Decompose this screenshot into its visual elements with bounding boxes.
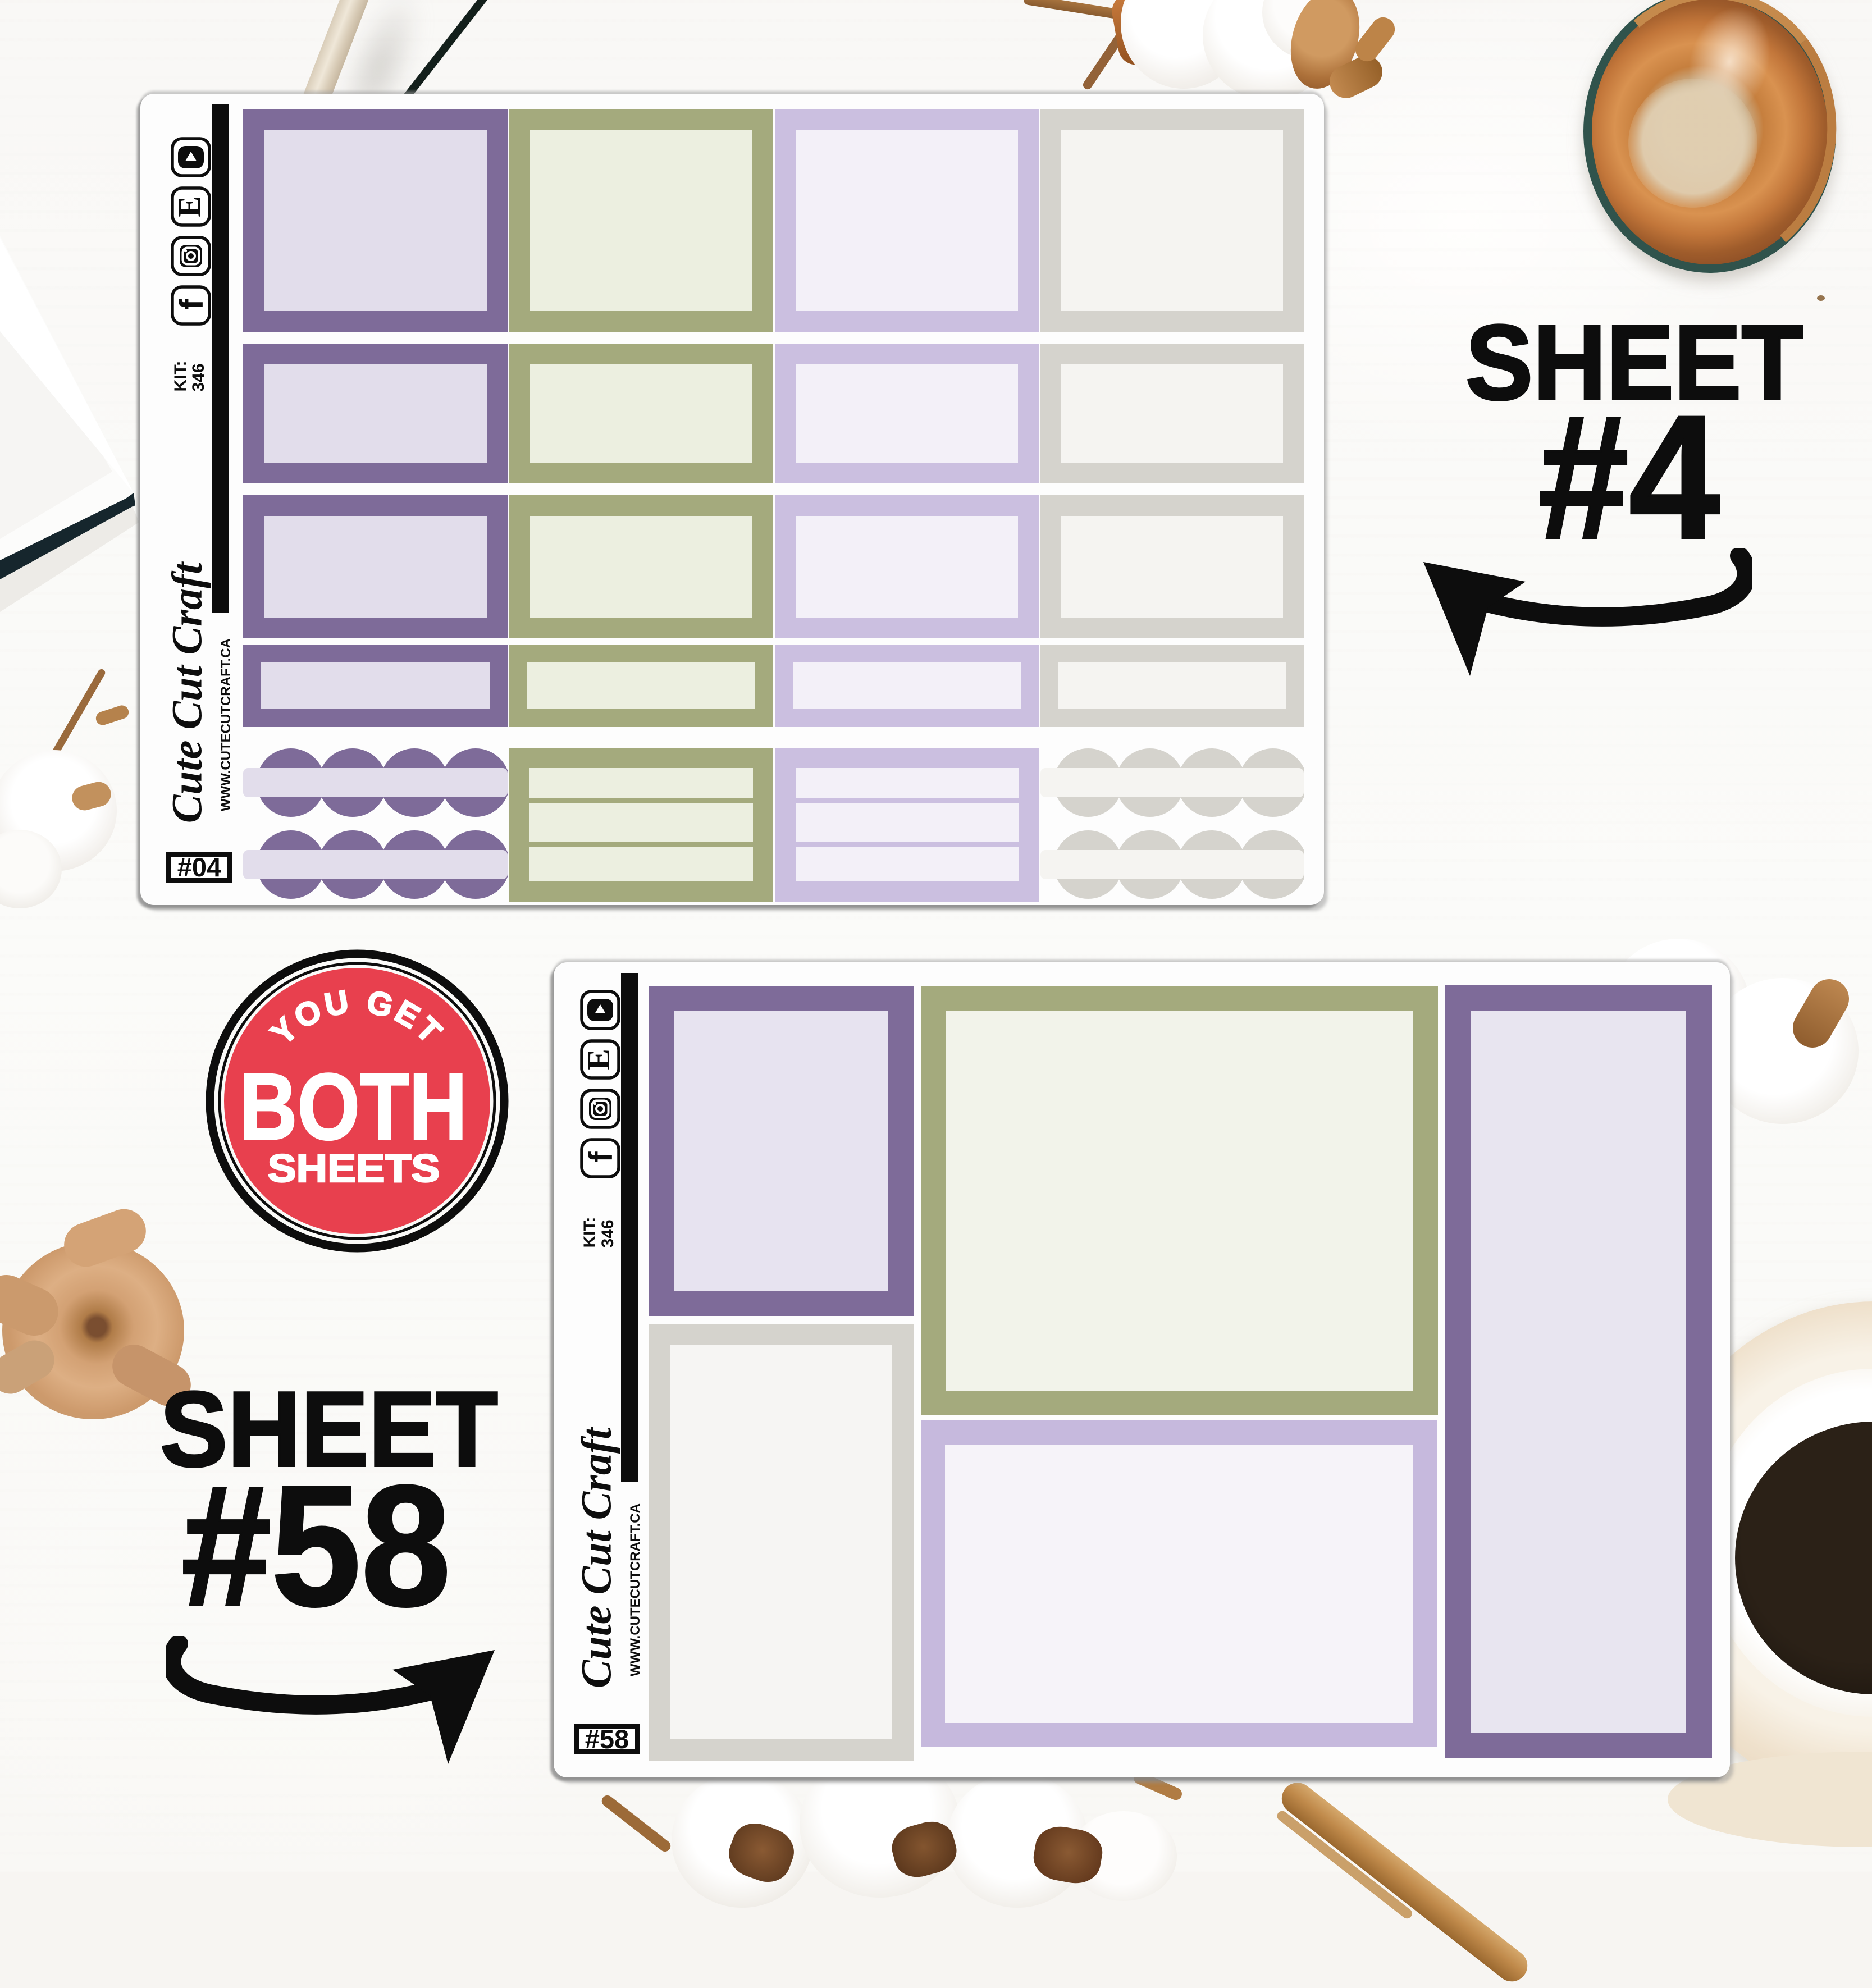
svg-text:E: E [172,196,207,217]
svg-text:E: E [582,1049,617,1070]
svg-text:BOTH: BOTH [239,1054,467,1159]
svg-text:f: f [173,299,210,310]
svg-text:SHEETS: SHEETS [268,1146,440,1190]
svg-text:f: f [583,1151,619,1163]
